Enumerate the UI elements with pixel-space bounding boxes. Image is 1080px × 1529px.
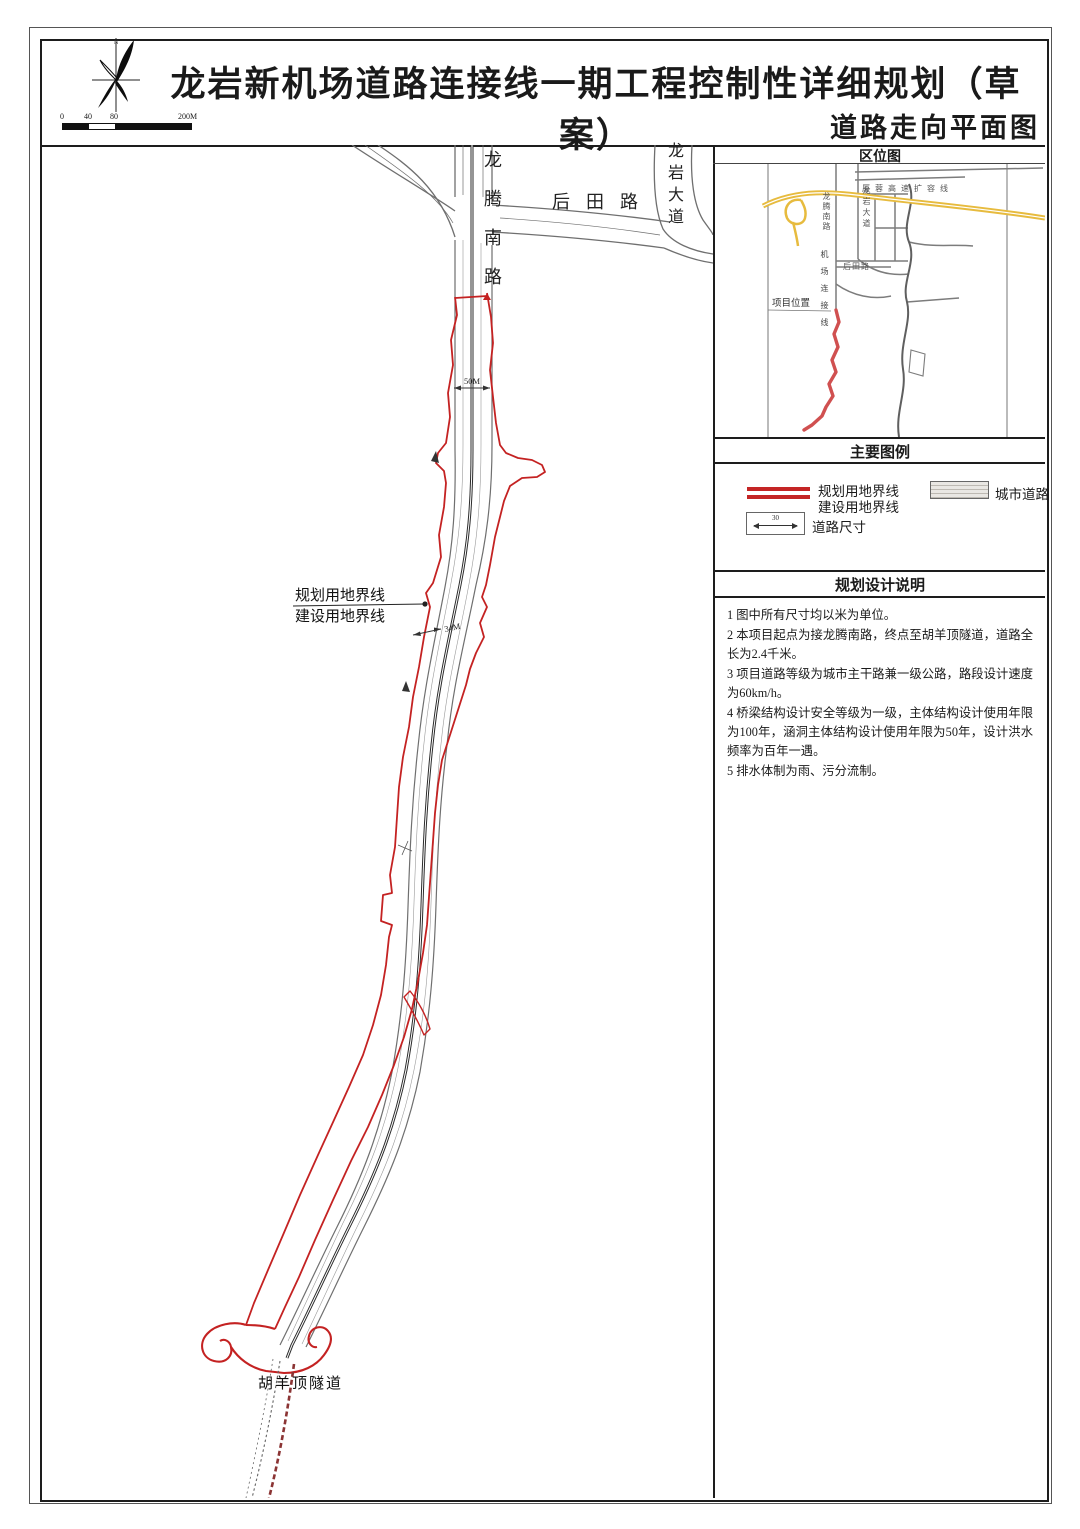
- north-arrow-icon: N: [88, 36, 144, 114]
- loc-label-longyan-avenue: 龙岩大道: [861, 186, 872, 230]
- scale-bar-strip: [62, 123, 192, 130]
- loc-label-expressway: 厦蓉高速扩容线: [862, 183, 953, 194]
- road-label-longyan-avenue: 龙岩大道: [661, 142, 685, 230]
- scale-tick-80: 80: [110, 112, 118, 121]
- notes-header-line: [713, 596, 1045, 598]
- location-map: [713, 164, 1045, 437]
- page-subtitle: 道路走向平面图: [640, 106, 1040, 145]
- legend-header: 主要图例: [713, 441, 1047, 462]
- note-line: 5 排水体制为雨、污分流制。: [727, 762, 1033, 781]
- legend-roaddim-arrow: [754, 525, 797, 526]
- main-map: 50M 34M 规划用地界线 建设用地界线 胡羊顶隧道: [40, 145, 713, 1498]
- scale-tick-0: 0: [60, 112, 64, 121]
- loc-label-longteng-nanlu: 龙腾南路: [821, 192, 832, 232]
- scale-bar: 0 40 80 200M: [60, 112, 210, 136]
- road-label-longteng-nanlu: 龙腾南路: [479, 150, 505, 306]
- loc-label-project-location: 项目位置: [772, 295, 810, 309]
- legend-boundary-swatch: [747, 487, 810, 499]
- legend-roaddim-value: 30: [747, 514, 804, 522]
- legend-top-line: [713, 437, 1045, 439]
- main-map-drawing: 50M 34M 规划用地界线 建设用地界线 胡羊顶隧道: [40, 145, 713, 1498]
- boundary-label-construction: 建设用地界线: [295, 608, 385, 625]
- dimension-50m-label: 50M: [464, 376, 481, 386]
- tunnel-label: 胡羊顶隧道: [258, 1375, 343, 1392]
- notes-body: 1 图中所有尺寸均以米为单位。 2 本项目起点为接龙腾南路，终点至胡羊顶隧道，道…: [727, 606, 1033, 782]
- legend-header-line: [713, 462, 1045, 464]
- legend-cityroad-swatch: [930, 481, 989, 499]
- boundary-label-planning: 规划用地界线: [295, 587, 385, 604]
- notes-header: 规划设计说明: [713, 574, 1047, 595]
- notes-top-line: [713, 570, 1045, 572]
- legend-roaddim-label: 道路尺寸: [812, 516, 866, 536]
- note-line: 1 图中所有尺寸均以米为单位。: [727, 606, 1033, 625]
- scale-tick-40: 40: [84, 112, 92, 121]
- legend-roaddim-swatch: 30: [746, 512, 805, 535]
- note-line: 2 本项目起点为接龙腾南路，终点至胡羊顶隧道，道路全长为2.4千米。: [727, 626, 1033, 664]
- note-line: 3 项目道路等级为城市主干路兼一级公路，路段设计速度为60km/h。: [727, 665, 1033, 703]
- road-label-houtian: 后田路: [552, 188, 654, 214]
- legend-cityroad-label: 城市道路: [995, 483, 1049, 503]
- legend-boundary-label-2: 建设用地界线: [818, 496, 899, 516]
- loc-label-airport-link: 机场连接线: [819, 250, 830, 335]
- dimension-34m-label: 34M: [443, 621, 461, 634]
- planning-sheet: { "title": { "main": "龙岩新机场道路连接线一期工程控制性详…: [0, 0, 1080, 1529]
- scale-tick-200: 200M: [178, 112, 197, 121]
- loc-label-houtian: 后田路: [843, 261, 870, 272]
- north-label: N: [114, 40, 119, 46]
- note-line: 4 桥梁结构设计安全等级为一级，主体结构设计使用年限为100年，涵洞主体结构设计…: [727, 704, 1033, 761]
